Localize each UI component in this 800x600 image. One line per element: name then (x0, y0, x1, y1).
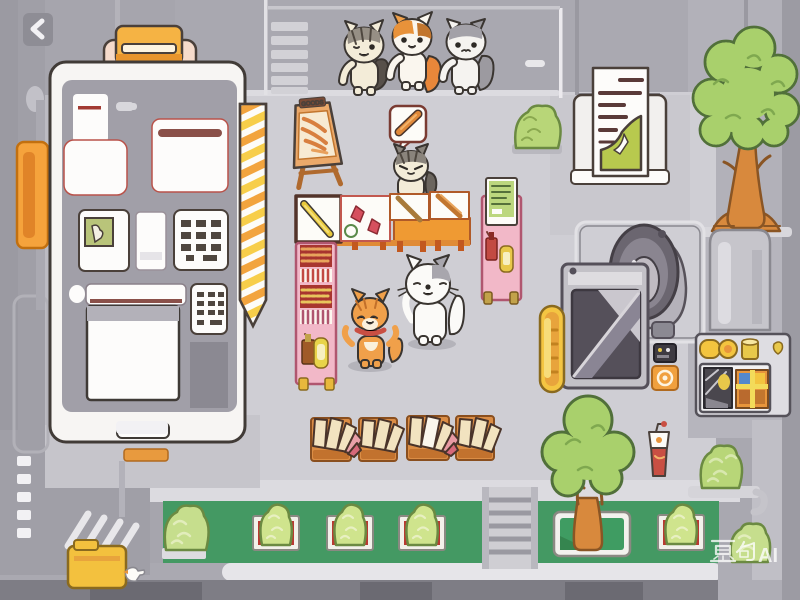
svg-text:AI: AI (758, 545, 778, 567)
